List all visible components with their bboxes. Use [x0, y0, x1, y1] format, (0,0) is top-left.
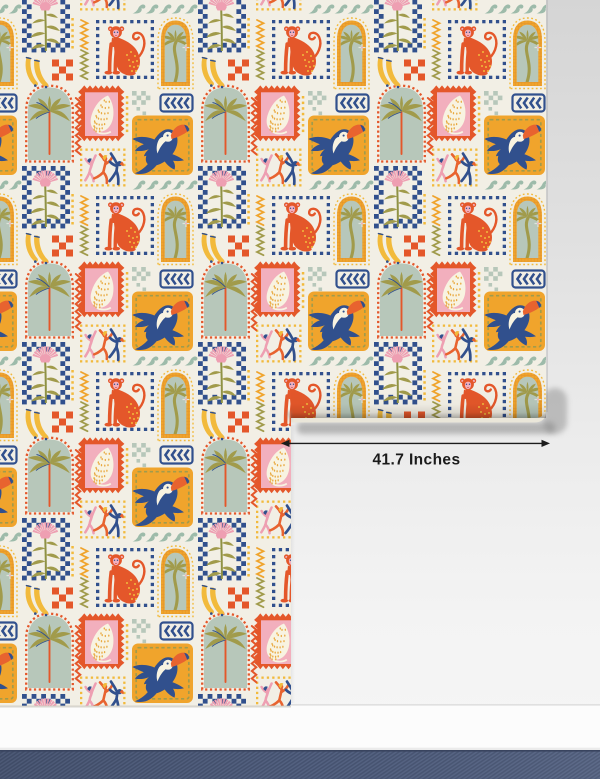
svg-text:41.7 Inches: 41.7 Inches: [373, 452, 461, 469]
